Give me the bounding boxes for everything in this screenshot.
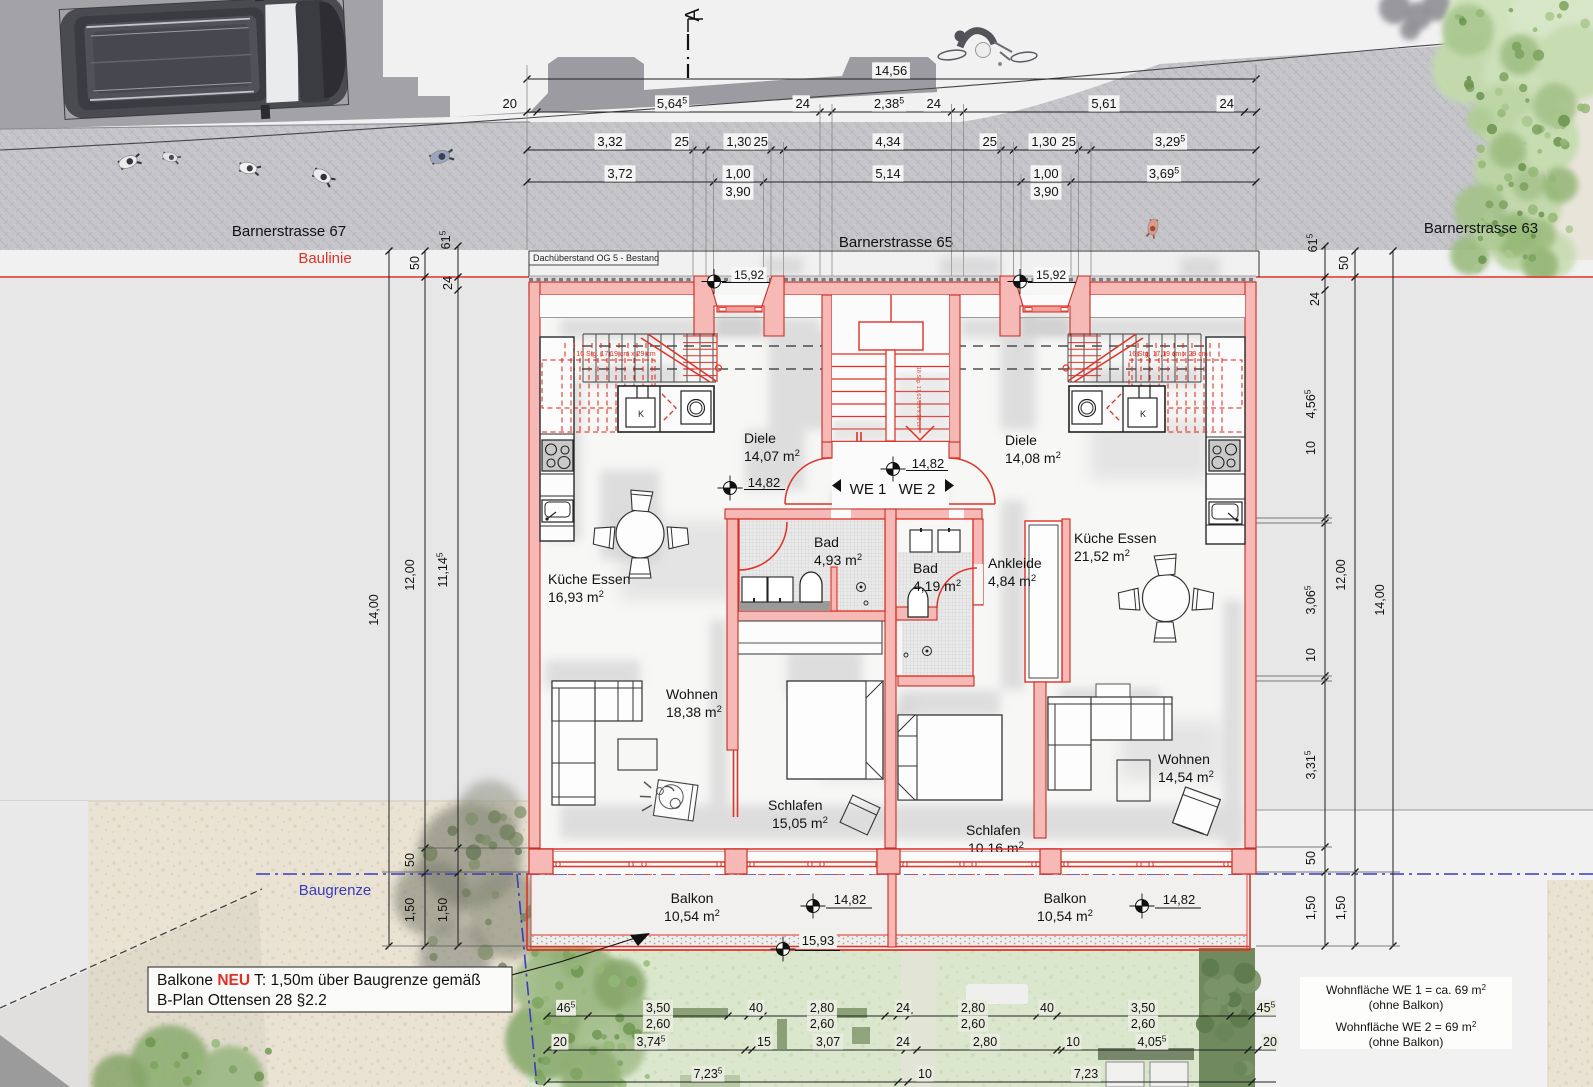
svg-text:K: K (638, 409, 644, 419)
svg-text:24: 24 (896, 1035, 910, 1049)
svg-text:2,80: 2,80 (810, 1001, 834, 1015)
svg-text:4,93 m2: 4,93 m2 (814, 552, 862, 568)
svg-text:Balkon: Balkon (671, 890, 714, 906)
svg-text:2,60: 2,60 (1131, 1017, 1155, 1031)
svg-text:14,00: 14,00 (1373, 584, 1387, 615)
svg-text:Diele: Diele (744, 430, 776, 446)
svg-text:14,07 m2: 14,07 m2 (744, 448, 800, 464)
svg-text:12,00: 12,00 (1334, 559, 1348, 590)
svg-text:Ankleide: Ankleide (988, 555, 1042, 571)
svg-text:14,00: 14,00 (367, 594, 381, 625)
svg-text:20: 20 (503, 96, 517, 111)
svg-text:Dachüberstand OG 5 - Bestand: Dachüberstand OG 5 - Bestand (533, 253, 659, 263)
svg-text:40: 40 (1040, 1001, 1054, 1015)
svg-text:Wohnfläche WE 2 = 69 m2: Wohnfläche WE 2 = 69 m2 (1336, 1020, 1477, 1034)
svg-text:16,93 m2: 16,93 m2 (548, 589, 604, 605)
svg-text:15,92: 15,92 (734, 268, 764, 282)
svg-text:1,50: 1,50 (436, 898, 450, 922)
svg-text:24: 24 (1220, 96, 1234, 111)
svg-text:Wohnfläche WE 1 = ca. 69 m2: Wohnfläche WE 1 = ca. 69 m2 (1326, 983, 1487, 997)
svg-text:Wohnen: Wohnen (1158, 751, 1210, 767)
svg-text:16 Stg. 17,19 cm x 29 cm: 16 Stg. 17,19 cm x 29 cm (1128, 351, 1208, 358)
svg-text:10,54 m2: 10,54 m2 (664, 908, 720, 924)
svg-text:15: 15 (757, 1035, 771, 1049)
svg-text:1,50: 1,50 (1304, 896, 1318, 920)
svg-text:1,50: 1,50 (1334, 896, 1348, 920)
svg-text:3,50: 3,50 (646, 1001, 670, 1015)
svg-text:1,00: 1,00 (1033, 166, 1058, 181)
svg-text:50: 50 (1337, 256, 1351, 270)
svg-text:18 Stg. 17,63 cm x 28 cm: 18 Stg. 17,63 cm x 28 cm (915, 367, 921, 430)
svg-text:Bad: Bad (913, 560, 938, 576)
svg-text:Baulinie: Baulinie (298, 250, 351, 267)
svg-text:4,34: 4,34 (875, 134, 900, 149)
svg-text:Balkon: Balkon (1044, 890, 1087, 906)
svg-text:18,38 m2: 18,38 m2 (666, 704, 722, 720)
svg-text:15,93: 15,93 (802, 933, 835, 948)
svg-text:24: 24 (796, 96, 810, 111)
svg-text:Schlafen: Schlafen (768, 797, 822, 813)
svg-text:5,61: 5,61 (1091, 96, 1116, 111)
svg-text:K: K (1140, 409, 1146, 419)
svg-text:3,90: 3,90 (725, 184, 750, 199)
svg-text:20: 20 (553, 1035, 567, 1049)
svg-text:14,82: 14,82 (912, 456, 945, 471)
svg-text:10: 10 (1066, 1035, 1080, 1049)
svg-text:24: 24 (1308, 292, 1322, 306)
svg-text:40: 40 (749, 1001, 763, 1015)
svg-text:14,54 m2: 14,54 m2 (1158, 769, 1214, 785)
svg-text:Küche Essen: Küche Essen (1074, 530, 1157, 546)
svg-text:Schlafen: Schlafen (966, 822, 1020, 838)
svg-text:Barnerstrasse 67: Barnerstrasse 67 (232, 223, 346, 240)
svg-text:5,14: 5,14 (875, 166, 900, 181)
svg-text:2,80: 2,80 (973, 1035, 997, 1049)
svg-text:(ohne Balkon): (ohne Balkon) (1369, 1035, 1444, 1049)
svg-text:1,50: 1,50 (403, 898, 417, 922)
svg-text:WE 1: WE 1 (850, 481, 887, 498)
svg-text:Balkone NEU T: 1,50m über Baug: Balkone NEU T: 1,50m über Baugrenze gemä… (157, 972, 481, 989)
svg-text:15,92: 15,92 (1036, 268, 1066, 282)
svg-text:14,08 m2: 14,08 m2 (1005, 450, 1061, 466)
svg-text:14,82: 14,82 (1163, 892, 1196, 907)
svg-text:14,56: 14,56 (875, 63, 908, 78)
svg-text:Küche Essen: Küche Essen (548, 571, 631, 587)
svg-text:20: 20 (1263, 1035, 1277, 1049)
svg-text:24: 24 (927, 96, 941, 111)
svg-text:1,00: 1,00 (725, 166, 750, 181)
svg-text:2,80: 2,80 (961, 1001, 985, 1015)
svg-text:21,52 m2: 21,52 m2 (1074, 548, 1130, 564)
svg-text:3,72: 3,72 (607, 166, 632, 181)
svg-text:14,82: 14,82 (834, 892, 867, 907)
svg-text:3,32: 3,32 (597, 134, 622, 149)
svg-text:B-Plan Ottensen 28 §2.2: B-Plan Ottensen 28 §2.2 (157, 992, 327, 1009)
svg-text:25: 25 (983, 134, 997, 149)
svg-text:16 Stg. 17,19 cm x 29 cm: 16 Stg. 17,19 cm x 29 cm (576, 351, 656, 358)
svg-text:7,23: 7,23 (1074, 1067, 1098, 1081)
svg-text:25: 25 (1062, 134, 1076, 149)
svg-text:10,54 m2: 10,54 m2 (1037, 908, 1093, 924)
svg-text:10: 10 (1304, 648, 1318, 662)
svg-text:3,90: 3,90 (1033, 184, 1058, 199)
svg-text:1,30: 1,30 (1031, 134, 1056, 149)
svg-text:25: 25 (754, 134, 768, 149)
svg-text:25: 25 (675, 134, 689, 149)
svg-text:15,05 m2: 15,05 m2 (772, 815, 828, 831)
svg-text:Diele: Diele (1005, 432, 1037, 448)
svg-text:Barnerstrasse 63: Barnerstrasse 63 (1424, 220, 1538, 237)
svg-text:Wohnen: Wohnen (666, 686, 718, 702)
svg-text:50: 50 (403, 853, 417, 867)
svg-text:Baugrenze: Baugrenze (299, 882, 372, 899)
svg-text:2,60: 2,60 (810, 1017, 834, 1031)
svg-text:2,60: 2,60 (961, 1017, 985, 1031)
svg-text:50: 50 (408, 256, 422, 270)
svg-text:11,145: 11,145 (435, 552, 450, 587)
svg-text:50: 50 (1304, 851, 1318, 865)
svg-text:Barnerstrasse 65: Barnerstrasse 65 (839, 234, 953, 251)
svg-text:Bad: Bad (814, 534, 839, 550)
svg-text:14,82: 14,82 (748, 475, 781, 490)
svg-text:4,84 m2: 4,84 m2 (988, 573, 1036, 589)
svg-text:24: 24 (441, 276, 455, 290)
svg-text:2,60: 2,60 (646, 1017, 670, 1031)
svg-text:12,00: 12,00 (403, 559, 417, 590)
svg-text:3,07: 3,07 (816, 1035, 840, 1049)
svg-text:1,30: 1,30 (726, 134, 751, 149)
svg-text:4,19 m2: 4,19 m2 (913, 578, 961, 594)
svg-text:WE 2: WE 2 (899, 481, 936, 498)
svg-text:(ohne Balkon): (ohne Balkon) (1369, 998, 1444, 1012)
svg-text:10: 10 (918, 1067, 932, 1081)
svg-text:3,50: 3,50 (1131, 1001, 1155, 1015)
svg-text:24: 24 (896, 1001, 910, 1015)
svg-text:10: 10 (1304, 441, 1318, 455)
